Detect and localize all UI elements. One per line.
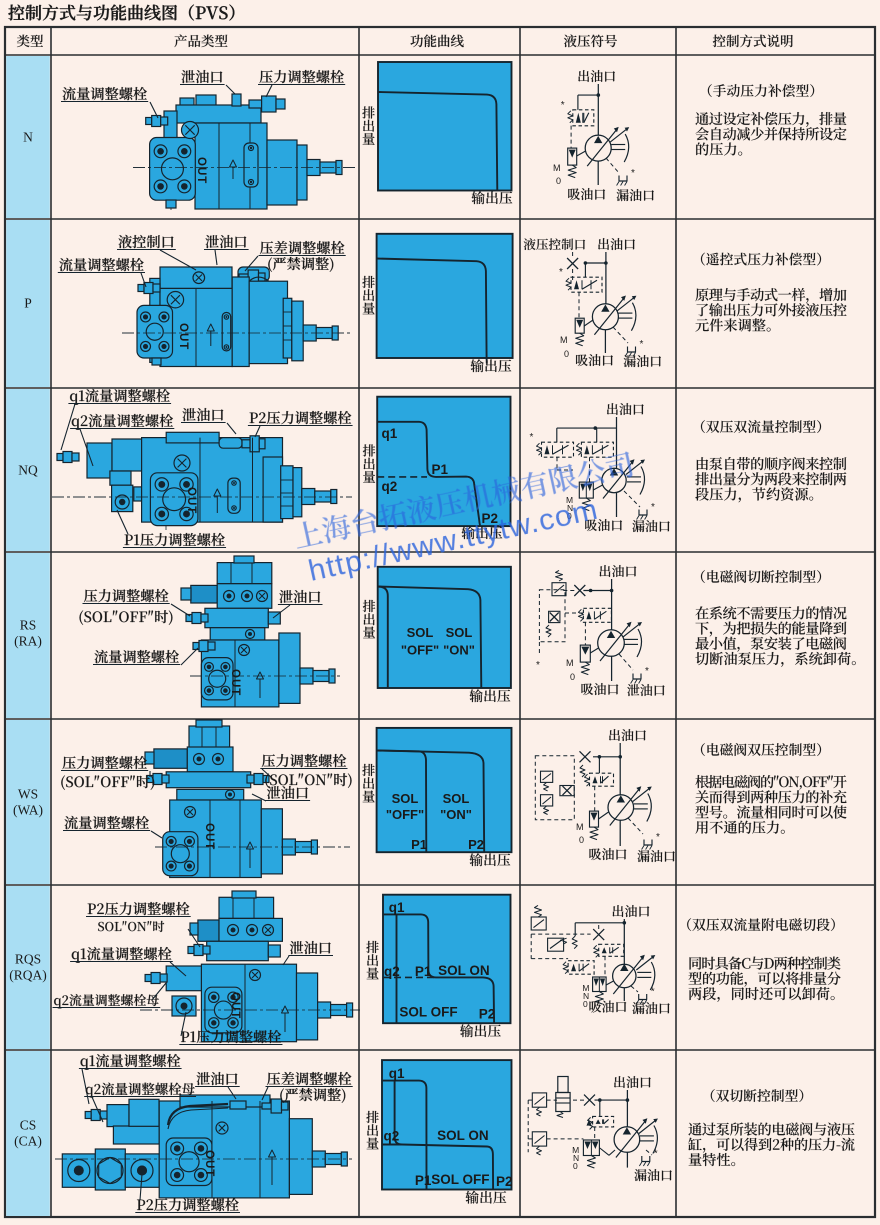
svg-text:OUT: OUT [229, 669, 241, 696]
svg-text:SOL: SOL [446, 625, 473, 640]
svg-text:*: * [651, 502, 655, 513]
svg-text:P1: P1 [411, 837, 427, 852]
svg-text:P1: P1 [415, 1173, 432, 1188]
svg-text:0: 0 [564, 349, 569, 359]
svg-text:RQS: RQS [15, 952, 41, 967]
svg-text:P2: P2 [479, 1007, 496, 1022]
svg-text:NQ: NQ [18, 463, 38, 478]
svg-text:0: 0 [573, 1161, 578, 1171]
svg-text:q2: q2 [384, 964, 400, 979]
svg-text:SOL: SOL [392, 791, 419, 806]
svg-text:N: N [23, 130, 33, 145]
svg-text:q1: q1 [382, 426, 398, 441]
svg-text:q2: q2 [382, 479, 398, 494]
svg-text:"OFF": "OFF" [386, 807, 424, 822]
svg-text:*: * [645, 666, 649, 677]
svg-text:OUT: OUT [195, 157, 207, 184]
svg-text:OUT: OUT [229, 992, 241, 1019]
svg-text:q2: q2 [384, 1129, 400, 1144]
svg-text:*: * [640, 339, 644, 350]
svg-text:(CA): (CA) [14, 1134, 42, 1149]
svg-text:RS: RS [20, 618, 37, 633]
svg-text:*: * [656, 832, 660, 843]
svg-text:OUT: OUT [177, 323, 189, 350]
svg-text:M: M [566, 658, 574, 668]
svg-text:P1: P1 [432, 462, 449, 477]
svg-text:SOL ON: SOL ON [437, 1128, 489, 1143]
svg-text:P1: P1 [415, 964, 432, 979]
svg-text:P: P [24, 296, 32, 311]
svg-text:*: * [631, 168, 635, 179]
svg-text:*: * [651, 987, 655, 998]
svg-text:WS: WS [18, 787, 38, 802]
svg-text:(WA): (WA) [13, 803, 43, 818]
svg-text:*: * [536, 660, 540, 671]
svg-text:SOL OFF: SOL OFF [399, 1005, 457, 1020]
svg-text:OUT: OUT [185, 487, 197, 514]
svg-text:SOL: SOL [443, 791, 470, 806]
svg-text:P2: P2 [468, 837, 484, 852]
svg-text:0: 0 [570, 672, 575, 682]
svg-text:SOL OFF: SOL OFF [431, 1172, 489, 1187]
svg-text:"ON": "ON" [443, 643, 475, 658]
svg-text:*: * [559, 267, 563, 278]
svg-text:"ON": "ON" [440, 807, 472, 822]
svg-text:*: * [561, 100, 565, 111]
svg-text:P2: P2 [496, 1174, 513, 1189]
svg-text:0: 0 [556, 176, 561, 186]
svg-text:q1: q1 [389, 1066, 405, 1081]
svg-text:0: 0 [579, 835, 584, 845]
svg-text:(RQA): (RQA) [9, 968, 47, 983]
svg-text:(RA): (RA) [14, 634, 42, 649]
svg-text:SOL ON: SOL ON [438, 963, 490, 978]
svg-text:M: M [553, 163, 561, 173]
svg-text:0: 0 [583, 999, 588, 1009]
svg-text:M: M [576, 822, 584, 832]
svg-text:*: * [530, 432, 534, 443]
svg-text:"OFF": "OFF" [401, 643, 439, 658]
svg-text:CS: CS [20, 1118, 37, 1133]
svg-text:SOL: SOL [407, 625, 434, 640]
svg-text:OUT: OUT [203, 823, 215, 850]
svg-text:q1: q1 [389, 900, 405, 915]
svg-text:*: * [654, 1149, 658, 1160]
svg-text:M: M [560, 335, 568, 345]
svg-text:OUT: OUT [203, 1150, 215, 1177]
